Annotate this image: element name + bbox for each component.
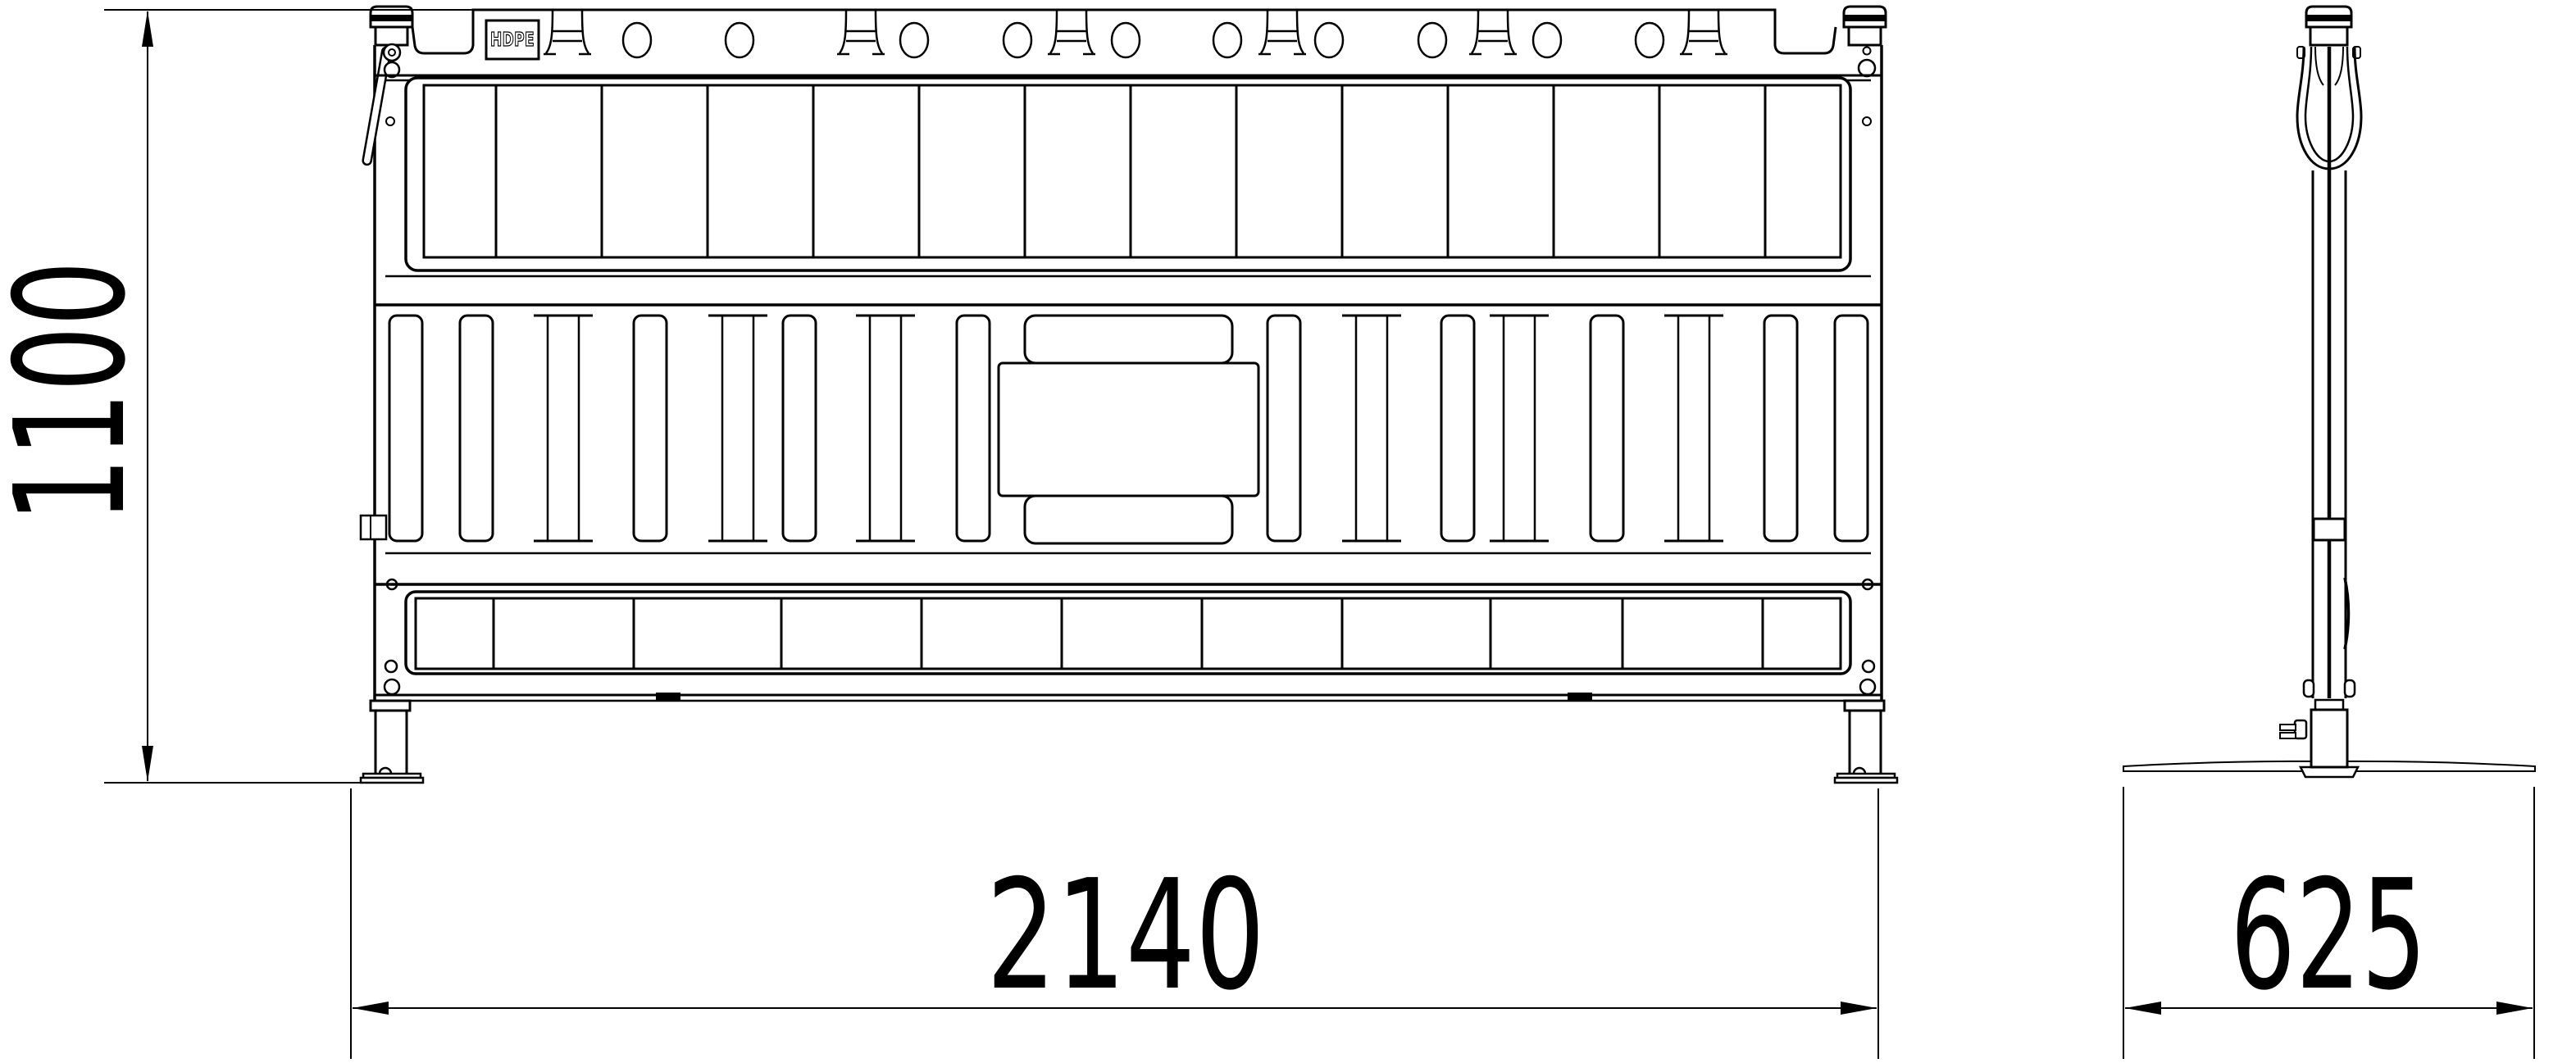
arrowhead-right xyxy=(2496,1002,2533,1015)
cap-neck xyxy=(375,27,407,45)
bottom-rail xyxy=(375,693,1882,701)
bolt-hole xyxy=(385,679,399,694)
post-shoulder-left xyxy=(2315,47,2323,85)
bolt-hole xyxy=(1863,661,1874,672)
cap-band xyxy=(371,15,412,21)
arrowhead-left xyxy=(2125,1002,2161,1015)
h-slot xyxy=(544,11,591,54)
post-shoulder-right xyxy=(2335,47,2343,85)
oval-hole xyxy=(1004,23,1031,57)
right-post-cap xyxy=(1844,7,1886,45)
top-rail: HDPE xyxy=(375,10,1882,80)
oval-hole xyxy=(1112,23,1140,57)
tap-wing-upper xyxy=(2280,725,2296,730)
arrowhead-down xyxy=(142,746,153,782)
arrowhead-up xyxy=(142,11,153,47)
slat xyxy=(1441,316,1474,541)
rail-tab xyxy=(656,693,680,701)
left-foot xyxy=(361,701,423,783)
h-slot xyxy=(1258,11,1306,54)
sign-plate-bottom-bar xyxy=(1025,496,1232,543)
hinge-bracket-plate xyxy=(361,516,386,539)
bolt-hole xyxy=(1860,679,1875,694)
top-panel xyxy=(406,78,1850,270)
dimension-depth-value: 625 xyxy=(2230,847,2427,1024)
hdpe-label-text: HDPE xyxy=(490,30,535,51)
left-post-cap xyxy=(371,7,412,45)
bottom-panel xyxy=(406,592,1850,674)
tap-body xyxy=(2295,720,2306,738)
drain-tap xyxy=(2280,720,2306,738)
side-post-cap xyxy=(2306,7,2351,45)
cap-neck xyxy=(2310,27,2347,45)
dimension-width: 2140 xyxy=(351,788,1878,1059)
oval-hole xyxy=(1213,23,1241,57)
oval-hole xyxy=(1315,23,1343,57)
foot-collar xyxy=(2315,700,2343,710)
foot-block xyxy=(2311,710,2347,767)
slat xyxy=(1591,316,1623,541)
technical-drawing-canvas: HDPE xyxy=(0,0,2576,1063)
rail-collar xyxy=(2314,519,2345,540)
leg xyxy=(375,711,407,775)
sign-plate-body xyxy=(999,363,1258,496)
oval-hole xyxy=(726,23,753,57)
side-view xyxy=(2123,7,2535,777)
base-pad xyxy=(2301,767,2358,777)
right-post-bolts xyxy=(1859,48,1875,126)
sign-plate xyxy=(999,316,1258,543)
tap-wing-lower xyxy=(2280,733,2296,738)
slat xyxy=(1835,316,1868,541)
sign-plate-top-bar xyxy=(1025,316,1232,363)
slat xyxy=(1268,316,1300,541)
bolt-hole xyxy=(1859,60,1875,76)
bolt-hole xyxy=(386,117,394,125)
hdpe-label-plate: HDPE xyxy=(486,20,539,59)
bolt-hole xyxy=(1863,117,1871,125)
bolt-hole xyxy=(385,661,397,672)
h-slot xyxy=(837,11,885,54)
bottom-panel-inner xyxy=(416,598,1841,669)
arrowhead-left xyxy=(353,1002,389,1015)
capped-slat xyxy=(534,316,593,541)
dimension-height-value: 1100 xyxy=(0,261,159,523)
clip-left xyxy=(2304,680,2314,697)
rail-tab xyxy=(1568,693,1592,701)
cap-band xyxy=(2306,15,2351,21)
capped-slat xyxy=(856,316,915,541)
hinge-bracket xyxy=(361,516,386,539)
oval-hole xyxy=(623,23,651,57)
oval-hole xyxy=(1636,23,1663,57)
slat xyxy=(1764,316,1797,541)
bolt-hole xyxy=(1864,48,1871,55)
arrowhead-right xyxy=(1841,1002,1877,1015)
latch-assembly xyxy=(362,44,400,166)
slat xyxy=(389,316,422,541)
dimension-depth: 625 xyxy=(2123,787,2534,1059)
front-view: HDPE xyxy=(361,7,1897,783)
leg-collar xyxy=(1845,701,1884,711)
clip-right xyxy=(2345,680,2355,697)
foot-plate-lower xyxy=(361,778,423,783)
slat xyxy=(957,316,990,541)
top-panel-inner xyxy=(424,85,1841,257)
capped-slat xyxy=(1490,316,1549,541)
slat xyxy=(634,316,667,541)
leg-collar xyxy=(371,701,410,711)
cap-band xyxy=(1844,15,1886,21)
capped-slat xyxy=(1664,316,1723,541)
right-foot xyxy=(1835,701,1897,783)
middle-band xyxy=(361,276,1882,584)
oval-hole xyxy=(1418,23,1446,57)
capped-slat xyxy=(708,316,767,541)
h-slot xyxy=(1048,11,1095,54)
capped-slat xyxy=(1342,316,1401,541)
h-slot xyxy=(1469,11,1517,54)
oval-hole xyxy=(900,23,928,57)
leg xyxy=(1850,711,1881,775)
h-slot xyxy=(1680,11,1727,54)
oval-hole xyxy=(1533,23,1561,57)
dimension-width-value: 2140 xyxy=(986,847,1265,1024)
foot-plate-lower xyxy=(1835,778,1897,783)
latch-ring-bolt xyxy=(384,44,400,61)
slat xyxy=(460,316,493,541)
cap-neck xyxy=(1849,27,1881,45)
slat xyxy=(783,316,816,541)
